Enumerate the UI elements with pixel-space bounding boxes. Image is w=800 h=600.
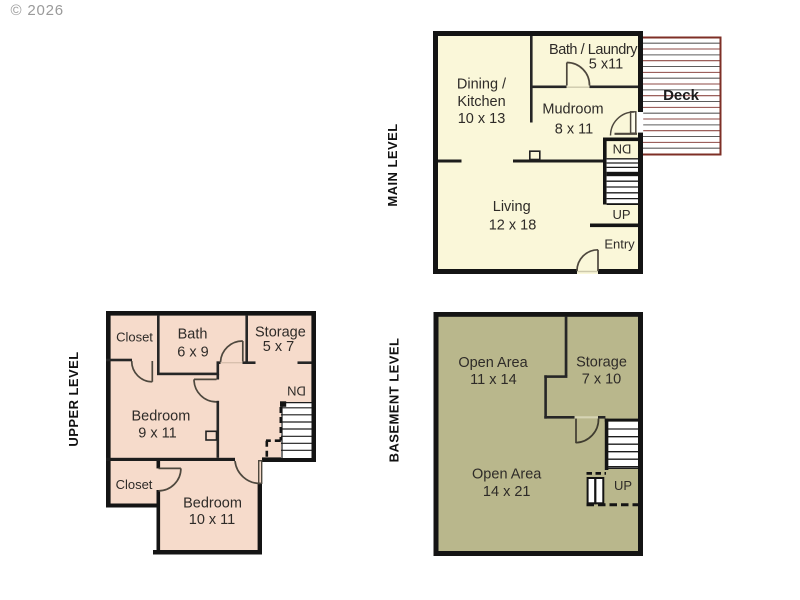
svg-text:Bath: Bath <box>178 327 208 343</box>
svg-text:Deck: Deck <box>663 87 700 104</box>
svg-text:Mudroom: Mudroom <box>542 102 603 118</box>
svg-text:Closet: Closet <box>116 477 153 492</box>
svg-text:UP: UP <box>612 207 630 222</box>
svg-text:5 x11: 5 x11 <box>589 57 623 73</box>
svg-text:Open Area: Open Area <box>458 355 528 371</box>
svg-text:BASEMENT LEVEL: BASEMENT LEVEL <box>387 338 402 463</box>
svg-text:Closet: Closet <box>116 330 153 345</box>
svg-text:Bedroom: Bedroom <box>131 408 190 424</box>
svg-text:9 x 11: 9 x 11 <box>138 426 176 442</box>
svg-text:Entry: Entry <box>604 237 635 252</box>
svg-text:MAIN LEVEL: MAIN LEVEL <box>385 123 400 206</box>
svg-text:5 x 7: 5 x 7 <box>263 339 294 355</box>
svg-text:© 2026: © 2026 <box>11 2 64 19</box>
svg-text:11 x 14: 11 x 14 <box>470 372 517 388</box>
svg-text:Kitchen: Kitchen <box>457 94 505 110</box>
svg-text:UP: UP <box>614 478 632 493</box>
svg-text:Living: Living <box>493 199 531 215</box>
svg-text:14 x 21: 14 x 21 <box>483 484 531 500</box>
svg-text:Dining /: Dining / <box>457 77 507 93</box>
svg-text:DN: DN <box>613 142 632 157</box>
svg-text:10 x 13: 10 x 13 <box>458 111 506 127</box>
svg-text:Open Area: Open Area <box>472 467 542 483</box>
svg-text:Storage: Storage <box>576 355 627 371</box>
svg-text:UPPER LEVEL: UPPER LEVEL <box>66 351 81 446</box>
svg-text:Bedroom: Bedroom <box>183 496 242 512</box>
svg-text:10 x 11: 10 x 11 <box>189 512 236 528</box>
svg-text:7 x 10: 7 x 10 <box>582 372 622 388</box>
svg-text:12 x 18: 12 x 18 <box>489 217 537 233</box>
svg-text:8 x 11: 8 x 11 <box>555 122 593 138</box>
svg-text:6 x 9: 6 x 9 <box>177 344 208 360</box>
svg-text:DN: DN <box>287 384 306 399</box>
